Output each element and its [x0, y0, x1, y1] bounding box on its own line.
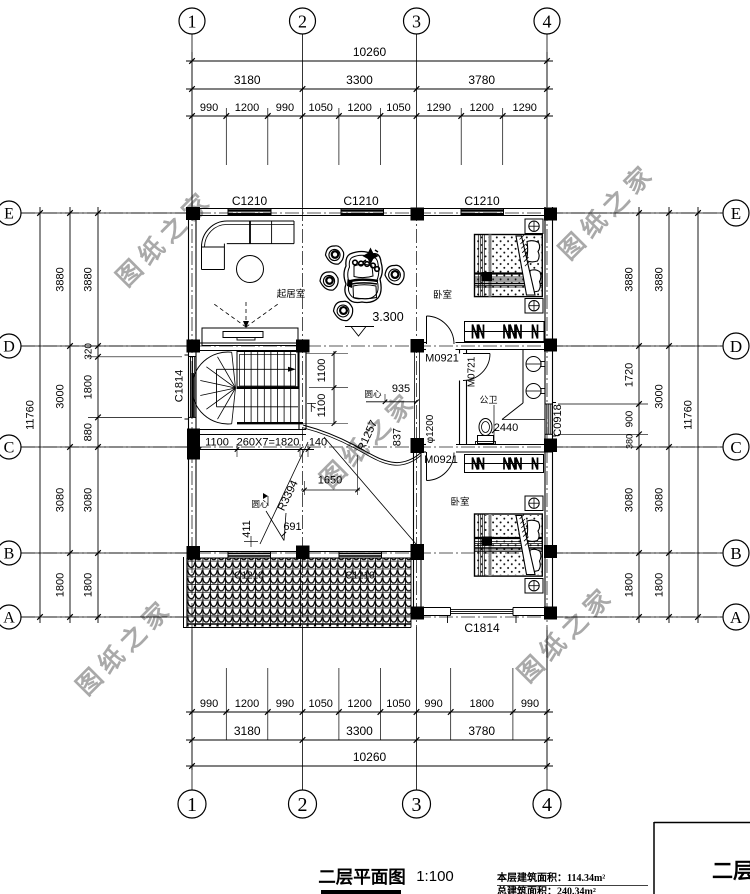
- svg-text:2: 2: [298, 12, 307, 32]
- svg-text:C0918: C0918: [552, 404, 564, 436]
- svg-text:1: 1: [188, 12, 197, 32]
- svg-text:1200: 1200: [235, 102, 259, 114]
- svg-text:卧室: 卧室: [450, 496, 469, 508]
- svg-text:140: 140: [309, 437, 327, 449]
- svg-text:C: C: [4, 440, 15, 457]
- svg-text:1050: 1050: [308, 102, 332, 114]
- svg-text:C1210: C1210: [464, 194, 500, 208]
- svg-text:3080: 3080: [654, 488, 666, 512]
- svg-text:C1814: C1814: [464, 621, 500, 635]
- svg-text:1100: 1100: [316, 359, 328, 383]
- svg-text:1200: 1200: [347, 698, 371, 710]
- svg-text:公卫: 公卫: [479, 395, 497, 405]
- svg-text:D: D: [3, 339, 15, 356]
- svg-text:3780: 3780: [468, 73, 495, 87]
- svg-text:1650: 1650: [318, 475, 342, 487]
- svg-text:C1210: C1210: [345, 571, 375, 582]
- svg-text:3.300: 3.300: [372, 310, 403, 324]
- svg-text:C1814: C1814: [174, 370, 186, 402]
- svg-text:990: 990: [424, 698, 442, 710]
- svg-text:1050: 1050: [308, 698, 332, 710]
- svg-text:10260: 10260: [353, 750, 387, 764]
- svg-text:C: C: [730, 438, 741, 457]
- svg-text:1:100: 1:100: [416, 868, 454, 885]
- svg-text:M0721: M0721: [467, 356, 478, 387]
- svg-text:1: 1: [187, 794, 197, 816]
- svg-text:3880: 3880: [55, 267, 67, 291]
- svg-text:卧室: 卧室: [433, 289, 452, 301]
- svg-text:A: A: [730, 608, 743, 627]
- svg-text:990: 990: [200, 698, 218, 710]
- svg-text:320: 320: [84, 343, 95, 360]
- svg-text:691: 691: [283, 521, 301, 533]
- svg-text:990: 990: [521, 698, 539, 710]
- svg-text:1200: 1200: [347, 102, 371, 114]
- svg-text:411: 411: [241, 520, 253, 538]
- svg-text:二层平面图: 二层平面图: [318, 867, 406, 887]
- svg-text:3880: 3880: [83, 267, 95, 291]
- svg-text:1800: 1800: [83, 573, 95, 597]
- svg-text:圆心: 圆心: [251, 499, 269, 509]
- svg-text:3: 3: [412, 794, 422, 816]
- svg-text:3300: 3300: [346, 73, 373, 87]
- svg-text:11760: 11760: [683, 400, 695, 430]
- svg-text:1800: 1800: [654, 573, 666, 597]
- svg-text:1200: 1200: [235, 698, 259, 710]
- svg-text:4: 4: [542, 794, 552, 816]
- svg-text:E: E: [4, 206, 14, 223]
- svg-text:B: B: [4, 546, 15, 563]
- svg-text:260X7=1820: 260X7=1820: [237, 437, 300, 449]
- svg-text:1100: 1100: [205, 437, 229, 449]
- svg-text:380: 380: [625, 434, 635, 449]
- svg-text:C1210: C1210: [234, 571, 264, 582]
- svg-text:1800: 1800: [55, 573, 67, 597]
- svg-text:4: 4: [543, 12, 552, 32]
- svg-text:C1210: C1210: [343, 194, 379, 208]
- svg-text:B: B: [730, 544, 741, 563]
- svg-text:3080: 3080: [83, 488, 95, 512]
- svg-text:990: 990: [200, 102, 218, 114]
- svg-text:990: 990: [276, 102, 294, 114]
- svg-text:3180: 3180: [234, 73, 261, 87]
- svg-text:M0921: M0921: [424, 454, 458, 466]
- svg-text:1720: 1720: [624, 363, 636, 387]
- svg-text:1290: 1290: [427, 102, 451, 114]
- svg-text:1200: 1200: [469, 102, 493, 114]
- svg-text:3300: 3300: [346, 724, 373, 738]
- svg-text:1800: 1800: [624, 573, 636, 597]
- svg-text:935: 935: [392, 383, 410, 395]
- svg-text:837: 837: [392, 428, 404, 446]
- svg-text:圆心: 圆心: [364, 389, 382, 399]
- svg-text:10260: 10260: [353, 45, 387, 59]
- svg-text:11760: 11760: [25, 400, 37, 430]
- svg-text:1050: 1050: [386, 698, 410, 710]
- svg-text:3000: 3000: [654, 384, 666, 408]
- svg-text:C1210: C1210: [232, 194, 268, 208]
- svg-text:1100: 1100: [316, 394, 328, 418]
- svg-text:M0921: M0921: [425, 353, 459, 365]
- svg-text:3180: 3180: [234, 724, 261, 738]
- svg-text:起居室: 起居室: [277, 288, 306, 300]
- svg-text:3080: 3080: [624, 488, 636, 512]
- svg-text:1800: 1800: [470, 698, 494, 710]
- svg-text:990: 990: [276, 698, 294, 710]
- svg-text:3880: 3880: [624, 267, 636, 291]
- svg-text:1800: 1800: [83, 375, 95, 399]
- svg-text:880: 880: [83, 423, 95, 441]
- svg-text:D: D: [730, 337, 742, 356]
- svg-text:1050: 1050: [386, 102, 410, 114]
- svg-text:900: 900: [625, 410, 636, 427]
- svg-text:3880: 3880: [654, 267, 666, 291]
- svg-text:1290: 1290: [512, 102, 536, 114]
- svg-text:φ1200: φ1200: [425, 414, 436, 443]
- svg-text:总建筑面积：240.34m²: 总建筑面积：240.34m²: [497, 885, 596, 894]
- svg-text:3080: 3080: [55, 488, 67, 512]
- svg-text:二层: 二层: [712, 859, 750, 883]
- svg-text:E: E: [731, 204, 741, 223]
- svg-text:2: 2: [298, 794, 308, 816]
- svg-text:3000: 3000: [55, 384, 67, 408]
- svg-text:A: A: [3, 610, 15, 627]
- svg-text:本层建筑面积：114.34m²: 本层建筑面积：114.34m²: [497, 871, 605, 884]
- svg-text:3780: 3780: [468, 724, 495, 738]
- svg-text:下: 下: [307, 403, 317, 414]
- svg-text:2440: 2440: [494, 422, 518, 434]
- svg-text:3: 3: [412, 12, 421, 32]
